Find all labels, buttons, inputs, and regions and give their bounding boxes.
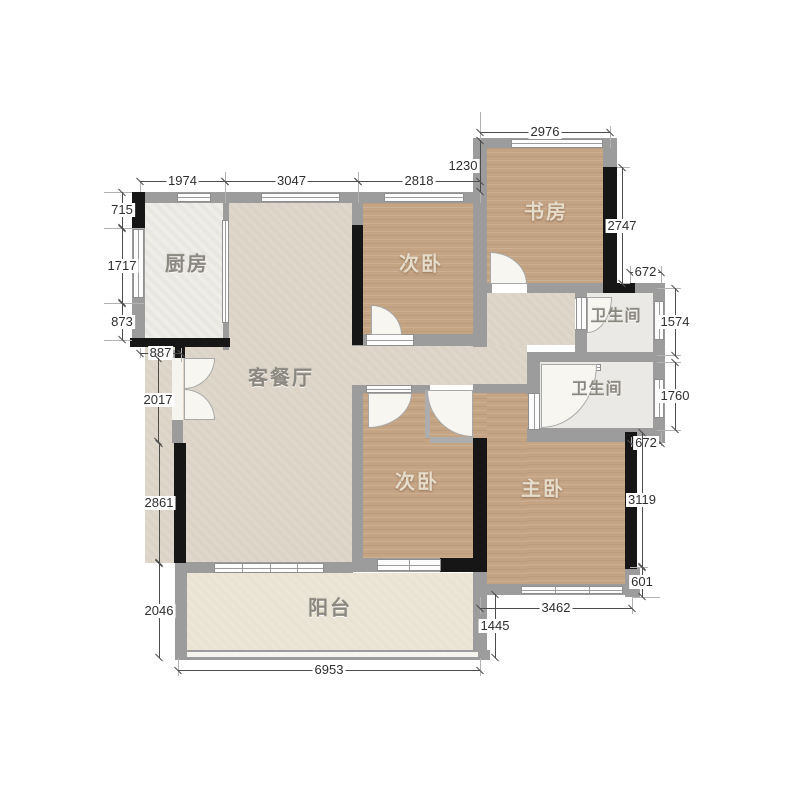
wall-study-bottom [527,283,605,293]
dim-715: 715 [116,192,129,228]
extension-line [632,597,633,614]
bedroom-bottom-door-opening [366,385,412,393]
black-wall-study-corner [603,283,635,293]
dim-672-top-value: 672 [633,265,659,279]
pane-divider [589,587,590,593]
bedroom-top-door-opening [366,334,414,346]
study-top-window [511,139,603,148]
kitchen-top-window [177,193,211,202]
extension-line [104,340,132,341]
dim-1230: 1230 [474,140,487,192]
hallway-floor-upper [487,293,575,345]
wall-bed-top-bottom-b [412,334,485,346]
bedroom-top-window [384,193,464,202]
dim-1445: 1445 [489,594,502,658]
dim-6953: 6953 [178,664,480,677]
wall-living-bed-lower [352,393,363,559]
bath-lower-door-opening [528,393,540,430]
dim-1574-value: 1574 [659,315,692,329]
dim-2017: 2017 [152,358,165,442]
dim-2818-value: 2818 [403,174,436,188]
extension-line [632,597,660,598]
dim-2747-value: 2747 [606,219,639,233]
dim-1974: 1974 [140,175,225,188]
pane-divider [409,560,410,570]
wall-balcony-left [175,563,187,660]
dim-1717-value: 1717 [106,259,139,273]
dim-873: 873 [116,303,129,340]
black-wall-bed-top-left [352,225,363,345]
wall-baths-divider [527,352,653,362]
dim-601-value: 601 [629,575,655,589]
dim-3119: 3119 [636,432,649,567]
kitchen-sliding-door [222,220,229,323]
room-label-bath-upper: 卫生间 [590,302,641,326]
dim-2747: 2747 [616,167,629,284]
dim-2818: 2818 [358,175,480,188]
dim-3462-value: 3462 [540,601,573,615]
dim-1760-value: 1760 [659,389,692,403]
pane-divider [297,564,298,572]
floor-plan: 厨房 客餐厅 次卧 书房 卫生间 卫生间 次卧 主卧 阳台 1974 3047 … [0,0,800,800]
extension-line [480,658,481,676]
dim-1760: 1760 [669,362,682,430]
entry-door-opening [172,358,183,420]
room-label-living-dining: 客餐厅 [248,362,314,391]
dim-672-top: 672 [630,266,661,279]
extension-line [610,126,611,148]
dim-3047: 3047 [225,175,358,188]
bedroom-balcony-window [377,559,441,571]
living-top-window [261,193,340,202]
dim-6953-value: 6953 [313,663,346,677]
dim-2861-value: 2861 [143,496,176,510]
dim-2046: 2046 [153,563,166,658]
wall-master-nook-h [430,437,475,443]
pane-divider [270,564,271,572]
dim-3462: 3462 [480,602,632,615]
dim-1574: 1574 [669,288,682,356]
black-wall-bed-bottom-corner [440,558,487,572]
wall-living-bed-upper [352,203,363,227]
master-bottom-window [521,586,623,594]
pane-divider [242,564,243,572]
room-label-bedroom-bottom: 次卧 [395,466,439,495]
room-label-master: 主卧 [521,473,565,502]
dim-2861: 2861 [153,443,166,563]
dim-2046-value: 2046 [143,604,176,618]
dim-2976: 2976 [480,126,610,139]
dim-2017-value: 2017 [142,393,175,407]
room-label-study: 书房 [524,196,568,225]
room-label-bath-lower: 卫生间 [571,375,622,399]
bath-upper-door-opening [576,297,587,330]
dim-873-value: 873 [109,315,135,329]
hallway-floor [355,345,527,385]
wall-study-bottom-stub [487,283,492,293]
dim-601: 601 [636,567,649,597]
room-label-balcony: 阳台 [308,592,352,621]
black-wall-bedrooms-divider [473,438,487,572]
dim-1974-value: 1974 [166,174,199,188]
room-label-bedroom-top: 次卧 [399,248,443,277]
balcony-sliding-door [214,563,324,573]
wall-left-entry-b [172,420,183,443]
dim-3047-value: 3047 [275,174,308,188]
dim-715-value: 715 [109,203,135,217]
dim-1717: 1717 [116,228,129,303]
black-wall-left-lower [174,443,186,563]
dim-1445-value: 1445 [479,619,512,633]
room-label-kitchen: 厨房 [165,248,209,277]
wall-study-right-upper [603,146,617,169]
pane-divider [555,587,556,593]
wall-bedrooms-top-c [473,384,530,393]
dim-1230-value: 1230 [447,159,480,173]
dim-2976-value: 2976 [529,125,562,139]
balcony-glass-strip [187,652,478,657]
dim-3119-value: 3119 [626,493,658,507]
wall-bath-upper-left-b [575,329,587,354]
master-floor [527,440,626,585]
